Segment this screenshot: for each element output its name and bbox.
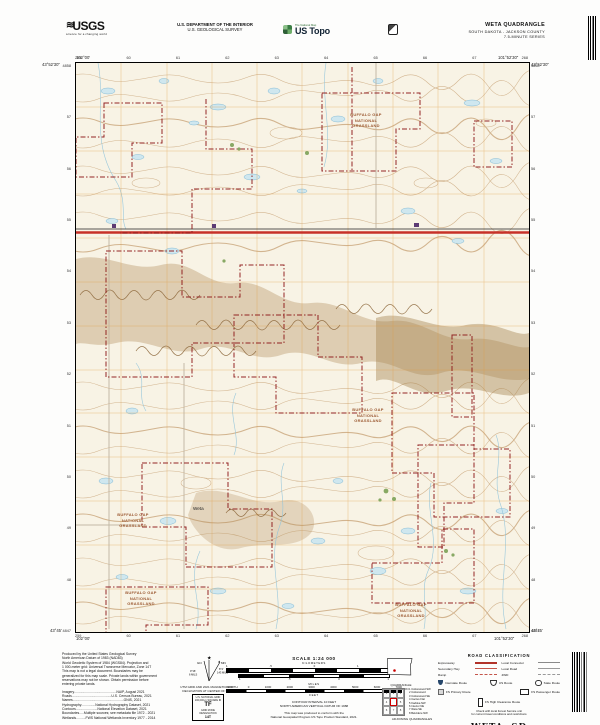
map-artwork xyxy=(76,63,529,632)
quad-series: 7.5-MINUTE SERIES xyxy=(420,35,545,39)
fs-note: Check with local Forest Service unit for… xyxy=(438,710,560,717)
margin-barcode xyxy=(588,16,596,60)
declination-diagram: ★ GN MN 0°16' 6 MILS 8°4' 143 MILS xyxy=(188,654,230,684)
interstate-shield-icon xyxy=(438,680,443,685)
interagency-symbol-icon xyxy=(388,24,398,35)
road-class-title: ROAD CLASSIFICATION xyxy=(438,653,560,658)
ramp-line-icon xyxy=(475,674,497,675)
town-label-weta: Weta xyxy=(193,506,204,511)
map-sheet: ≋USGS science for a changing world U.S. … xyxy=(0,0,600,725)
quad-state-county: SOUTH DAKOTA - JACKSON COUNTY xyxy=(420,30,545,34)
scalebar-kilometers xyxy=(226,668,402,672)
adjoining-quads: 12345678 1 Cottonwood SW2 Cottonwood3 Co… xyxy=(382,688,431,716)
grassland-label-1: BUFFALO GAPNATIONALGRASSLAND xyxy=(346,112,386,129)
edge-ticks-left: 4858575655545352515049484847 xyxy=(57,64,71,633)
expressway-line-icon xyxy=(475,662,497,664)
fs-primary-icon xyxy=(438,689,444,695)
adjoining-grid: 12345678 xyxy=(382,688,405,716)
grassland-label-4: BUFFALO GAPNATIONALGRASSLAND xyxy=(121,590,161,607)
svg-text:0°16': 0°16' xyxy=(190,669,196,673)
grassland-label-2: BUFFALO GAPNATIONALGRASSLAND xyxy=(346,407,390,424)
state-route-icon xyxy=(535,680,542,687)
usgs-tagline: science for a changing world xyxy=(66,32,107,36)
state-locator: QUADRANGLE LOCATION xyxy=(386,656,416,691)
map-frame: BUFFALO GAPNATIONALGRASSLAND BUFFALO GAP… xyxy=(75,62,530,633)
fs-high-clearance-icon xyxy=(478,698,483,707)
local-connector-line-icon xyxy=(538,662,560,663)
fs-passenger-icon xyxy=(520,689,529,694)
quad-name: WETA QUADRANGLE xyxy=(420,22,545,28)
svg-text:6 MILS: 6 MILS xyxy=(189,672,197,676)
adjoining-names: 1 Cottonwood SW2 Cottonwood3 Cottonwood … xyxy=(409,688,431,716)
secondary-hwy-line-icon xyxy=(475,668,497,669)
footer-barcode xyxy=(572,652,587,712)
svg-text:★: ★ xyxy=(207,656,212,662)
fourwd-line-icon xyxy=(538,674,560,675)
grassland-label-5: BUFFALO GAPNATIONALGRASSLAND xyxy=(391,602,431,619)
usng-box: U.S. NATIONAL GRID 100,000-m SQUARE ID T… xyxy=(192,694,224,721)
edge-ticks-bottom: 2596061626364656667268 xyxy=(75,634,528,639)
national-map-icon xyxy=(283,25,292,34)
header-agency: U.S. DEPARTMENT OF THE INTERIOR U.S. GEO… xyxy=(150,22,280,33)
scale-block: SCALE 1:24 000 KILOMETERS 1.5012 1.501 M… xyxy=(226,656,402,719)
edge-ticks-right: 4858575655545352515049484847 xyxy=(531,64,545,633)
svg-text:8°4': 8°4' xyxy=(219,667,224,671)
us-route-shield-icon xyxy=(490,680,497,687)
ustopo-label: US Topo xyxy=(295,27,330,35)
svg-text:MN: MN xyxy=(221,661,226,665)
grassland-label-3: BUFFALO GAPNATIONALGRASSLAND xyxy=(113,512,153,529)
local-road-line-icon xyxy=(538,668,560,669)
edge-ticks-top: 2596061626364656667268 xyxy=(75,56,528,61)
road-classification: ROAD CLASSIFICATION Expressway Local Con… xyxy=(438,653,560,725)
usgs-logo: ≋USGS science for a changing world xyxy=(66,20,107,36)
dept-line2: U.S. GEOLOGICAL SURVEY xyxy=(150,27,280,32)
svg-text:GN: GN xyxy=(197,661,202,665)
ustopo-logo: The National Map US Topo xyxy=(283,24,330,35)
quad-title-block: WETA QUADRANGLE SOUTH DAKOTA - JACKSON C… xyxy=(420,22,545,39)
